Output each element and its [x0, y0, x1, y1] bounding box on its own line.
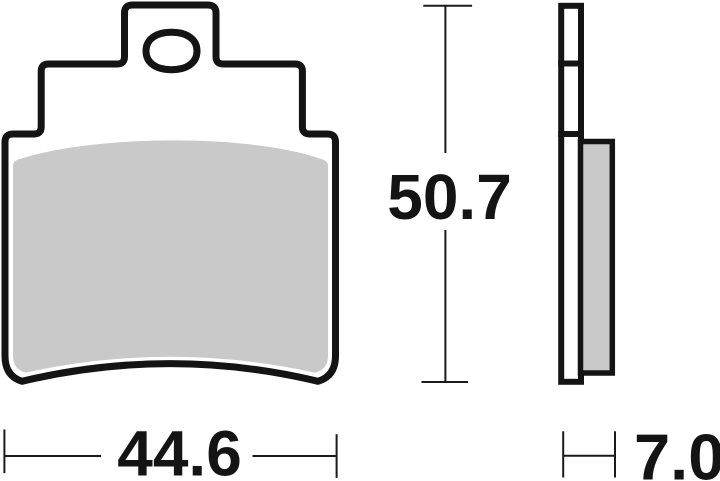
svg-text:50.7: 50.7: [387, 161, 512, 233]
svg-text:44.6: 44.6: [117, 418, 242, 481]
svg-text:7.0: 7.0: [634, 421, 720, 481]
